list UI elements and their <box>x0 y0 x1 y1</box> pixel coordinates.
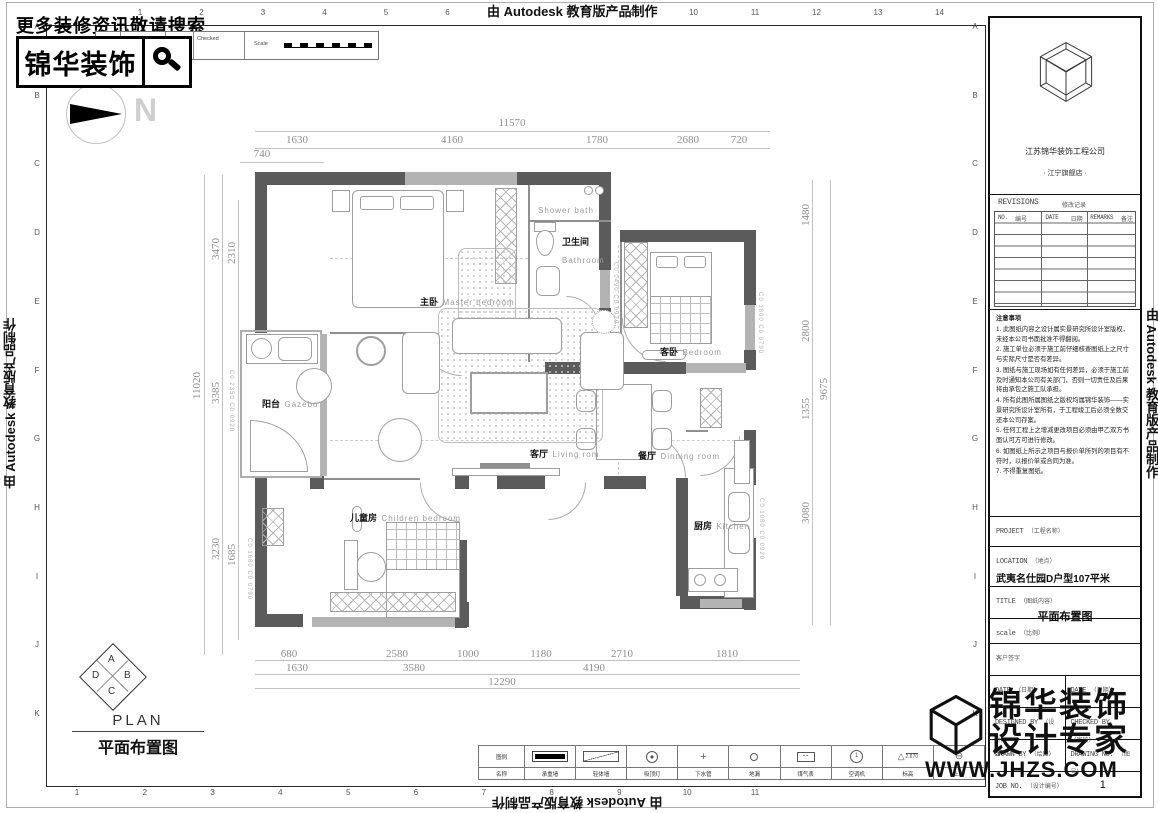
dimension-line <box>830 180 831 625</box>
toilet <box>536 230 554 256</box>
pillow <box>684 256 706 268</box>
wall-segment <box>620 362 686 374</box>
dim: 3580 <box>403 662 425 674</box>
dim-top-total: 11570 <box>498 117 525 129</box>
project-section: PROJECT （工程名称） <box>990 517 1140 547</box>
autodesk-watermark-bottom: 由 Autodesk 教育版产品制作 <box>492 794 662 813</box>
room-label-master: 主卧 Master bedroom <box>420 292 515 310</box>
location-value: 武夷名仕园D户型107平米 <box>996 570 1134 585</box>
room-label-en: Gazebo <box>284 400 318 409</box>
title-section: TITLE （图纸内容） 平面布置图 <box>990 587 1140 619</box>
wall-segment <box>255 614 303 627</box>
solid-wall-symbol <box>525 746 575 768</box>
burner <box>714 574 726 586</box>
jhzs-url: WWW.JHZS.COM <box>925 757 1157 783</box>
grid-label: 11 <box>748 788 762 797</box>
room-label-children: 儿童房 Children bedroom <box>350 508 461 526</box>
note-item: 7. 不得重复图纸。 <box>996 467 1134 477</box>
dimension-line <box>222 175 223 655</box>
dim: 2710 <box>611 648 633 660</box>
pillow <box>400 196 434 210</box>
dir-label-d: D <box>92 670 99 681</box>
scale-field-label: scale <box>996 630 1016 638</box>
elevation-reference-symbol: A B C D <box>78 642 148 712</box>
scale-label: Scale <box>254 41 268 47</box>
note-item: 4. 所有此图所属图纸之版权均属锦华装饰——实景研究所设计室所有，于工程竣工后必… <box>996 396 1134 425</box>
dim: 3230 <box>210 538 222 560</box>
job-no-label: JOB NO. <box>995 783 1022 791</box>
client-sign-label: 客户签字 <box>996 656 1020 662</box>
dimension-line <box>812 180 813 625</box>
dim: 1780 <box>586 134 608 146</box>
dim-bottom-total: 12290 <box>488 676 516 688</box>
client-sign-section: 客户签字 <box>990 644 1140 676</box>
window-wall <box>686 363 746 373</box>
jhzs-text-1: 锦华装饰 <box>989 688 1157 723</box>
dim: 2310 <box>226 242 238 264</box>
window-tag: C0 0490 C0 0920 <box>612 262 618 324</box>
window-tag: C0 1680 C0 0790 <box>246 538 252 600</box>
shoe-cabinet <box>700 388 722 428</box>
brand-logo-text: 锦华装饰 <box>19 39 142 85</box>
title-block: 江苏锦华装饰工程公司 · 江宁旗舰店 · REVISIONS 修改记录 NO. … <box>988 16 1142 798</box>
shower-fitting <box>595 186 604 195</box>
magnifier-icon <box>142 39 189 85</box>
room-label-cn: 客卧 <box>660 347 678 357</box>
room-label-cn: 主卧 <box>420 297 438 307</box>
shower-fitting <box>584 186 593 195</box>
dimension-line <box>255 688 800 689</box>
scale-field-label-cn: （比例） <box>1020 631 1044 637</box>
dim: 3080 <box>800 502 812 524</box>
dining-chair <box>652 390 672 412</box>
dimension-line <box>255 660 800 661</box>
ac-unit-symbol: 1 <box>832 746 882 768</box>
note-item: 1. 此图纸内容之设计属实景研究所设计室版权，未经本公司书面批准不得翻阅。 <box>996 325 1134 345</box>
sofa <box>452 318 562 354</box>
window-wall <box>312 617 455 627</box>
company-section: 江苏锦华装饰工程公司 · 江宁旗舰店 · <box>990 18 1140 195</box>
plan-caption-cn: 平面布置图 <box>72 734 204 758</box>
wardrobe <box>330 592 456 612</box>
plan-caption: PLAN 平面布置图 <box>72 712 204 758</box>
cabinet <box>262 508 284 546</box>
room-label-en: Dinning room <box>660 452 720 461</box>
wardrobe <box>495 188 517 284</box>
laundry-basin <box>251 338 272 359</box>
desk <box>344 540 358 590</box>
job-no-label-cn: （设计编号） <box>1027 784 1063 790</box>
rev-col-date: DATE <box>1045 214 1058 221</box>
floor-drain-symbol <box>729 746 779 768</box>
window-tag: C0 1080 C0 0920 <box>758 498 764 560</box>
title-label-cn: （图纸内容） <box>1020 599 1056 605</box>
room-label-cn: 阳台 <box>262 399 280 409</box>
gas-meter-symbol: ▪ ▪ <box>781 746 831 768</box>
dir-label-b: B <box>124 670 131 681</box>
nightstand <box>446 190 464 212</box>
legend-item-name: 下水管 <box>678 768 728 779</box>
table-divider <box>193 32 194 59</box>
legend-item-name: 空调机 <box>832 768 882 779</box>
rev-col-no: NO. <box>998 214 1008 221</box>
dimension-line <box>238 200 239 640</box>
dim: 1810 <box>716 648 738 660</box>
notes-title: 注意事项 <box>996 314 1134 324</box>
window-wall <box>600 270 610 308</box>
armchair <box>580 332 624 390</box>
legend-item-name: 煤气表 <box>781 768 831 779</box>
dim: 1685 <box>226 544 238 566</box>
wall-segment <box>255 185 267 333</box>
dim: 1000 <box>457 648 479 660</box>
window-wall <box>745 305 755 350</box>
round-chair <box>378 418 422 462</box>
partition-line <box>686 430 708 432</box>
dim: 1480 <box>800 204 812 226</box>
legend-item-name: 轻体墙 <box>576 768 626 779</box>
wall-segment <box>255 476 267 626</box>
note-item: 3. 图纸与施工现场如有任何差异，必须于施工前及时通知本公司有关部门，否则一切责… <box>996 366 1134 395</box>
dimension-line <box>255 148 770 149</box>
dim: 2800 <box>800 320 812 342</box>
grid-label: 8 <box>545 788 559 797</box>
room-label-cn: 卫生间 <box>562 237 589 247</box>
room-label-cn: 餐厅 <box>638 451 656 461</box>
window-tag: C0 1800 C0 0790 <box>757 292 763 354</box>
dim: 720 <box>731 134 748 146</box>
room-label-en: Shower bath <box>538 206 594 215</box>
dim: 4190 <box>583 662 605 674</box>
checked-label: Checked <box>197 36 219 42</box>
room-label-cn: 厨房 <box>694 521 712 531</box>
room-label-en: Master bedroom <box>442 298 514 307</box>
burner <box>694 574 706 586</box>
light-wall-symbol <box>576 746 626 768</box>
dim: 1180 <box>530 648 552 660</box>
legend-item: + 下水管 <box>678 746 729 779</box>
dim: 680 <box>281 648 298 660</box>
grid-label: 9 <box>612 788 626 797</box>
room-label-living: 客厅 Living rom <box>530 444 599 462</box>
desk-chair <box>356 552 386 582</box>
notes-list: 1. 此图纸内容之设计属实景研究所设计室版权，未经本公司书面批准不得翻阅。2. … <box>996 325 1134 477</box>
dir-label-c: C <box>108 686 115 697</box>
sofa-side <box>402 332 440 394</box>
revisions-title: REVISIONS <box>998 198 1039 207</box>
company-cube-logo <box>1034 40 1098 104</box>
dim: 3385 <box>210 382 222 404</box>
legend-header-bottom: 名称 <box>479 768 524 779</box>
grid-label: 2 <box>138 788 152 797</box>
revisions-section: REVISIONS 修改记录 NO. 编号 DATE 日期 REMARKS 备注 <box>990 195 1140 310</box>
room-label-dining: 餐厅 Dinning room <box>638 446 720 464</box>
room-label-shower: Shower bath <box>538 200 594 218</box>
dimension-line <box>255 674 800 675</box>
jhzs-text-2: 设计专家 <box>989 723 1157 758</box>
revisions-title-cn: 修改记录 <box>1062 200 1086 209</box>
legend-header-cell: 图例 名称 <box>479 746 525 779</box>
legend-item: ▪ ▪ 煤气表 <box>781 746 832 779</box>
legend-item: 吸顶灯 <box>627 746 678 779</box>
window-wall <box>700 599 742 608</box>
room-label-kitchen: 厨房 Kitchen <box>694 516 750 534</box>
title-label: TITLE <box>996 598 1016 606</box>
room-label-en: Bedroom <box>682 348 721 357</box>
wall-segment <box>497 476 545 489</box>
grid-label: 4 <box>273 788 287 797</box>
scale-bar <box>284 43 372 48</box>
room-label-en: Living rom <box>552 450 599 459</box>
jhzs-cube-logo <box>925 694 987 756</box>
scale-section: scale （比例） <box>990 619 1140 645</box>
revisions-table: NO. 编号 DATE 日期 REMARKS 备注 <box>994 211 1136 307</box>
wall-segment <box>620 230 746 242</box>
wall-segment <box>676 478 688 596</box>
brand-logo-box: 锦华装饰 <box>16 36 192 88</box>
wall-segment <box>255 172 405 185</box>
room-label-cn: 客厅 <box>530 449 548 459</box>
legend-item: 地漏 <box>729 746 780 779</box>
dim: 1630 <box>286 662 308 674</box>
store-name: · 江宁旗舰店 · <box>990 168 1140 178</box>
dimension-line <box>255 131 770 132</box>
room-label-en: Children bedroom <box>381 514 461 523</box>
fridge <box>734 440 750 484</box>
bed-blanket <box>386 522 460 570</box>
nightstand <box>332 190 350 212</box>
grid-label: 6 <box>409 788 423 797</box>
notes-section: 注意事项 1. 此图纸内容之设计属实景研究所设计室版权，未经本公司书面批准不得翻… <box>990 310 1140 517</box>
bathroom-sink <box>536 266 560 296</box>
bed-blanket <box>650 296 712 344</box>
room-label-bathroom: 卫生间Bathroom <box>562 232 605 268</box>
dim: 4160 <box>441 134 463 146</box>
legend-item: 1 空调机 <box>832 746 883 779</box>
pillow <box>360 196 394 210</box>
legend-item-name: 吸顶灯 <box>627 768 677 779</box>
autodesk-watermark-right: 由 Autodesk 教育版产品制作 <box>1142 308 1158 478</box>
pillow <box>656 256 678 268</box>
dimension-line <box>240 162 324 163</box>
plan-caption-en: PLAN <box>72 712 204 732</box>
room-label-balcony: 阳台 Gazebo <box>262 394 319 412</box>
note-item: 6. 如图纸上所示之项目与报价单所列的项目有不符时，以报价单或合同为准。 <box>996 447 1134 467</box>
grid-label: 5 <box>341 788 355 797</box>
dim: 1355 <box>800 398 812 420</box>
company-name: 江苏锦华装饰工程公司 <box>990 146 1140 157</box>
table-divider <box>244 32 245 59</box>
dir-label-a: A <box>108 654 115 665</box>
legend-item: 轻体墙 <box>576 746 627 779</box>
dim: 2680 <box>677 134 699 146</box>
dim: 1630 <box>286 134 308 146</box>
dim-left-total: 11020 <box>191 372 203 399</box>
grid-label: 10 <box>680 788 694 797</box>
location-section: LOCATION （地点） 武夷名仕园D户型107平米 <box>990 547 1140 587</box>
note-item: 5. 任何工程上之增减更改项目必须由甲乙双方书面认可方可进行修改。 <box>996 426 1134 446</box>
legend-header-top: 图例 <box>479 746 524 768</box>
door-arc <box>548 482 586 520</box>
legend-table: 图例 名称 承重墙 轻体墙 吸顶灯 + 下水管 地漏 ▪ ▪ 煤气表 1 空调机… <box>478 745 985 780</box>
rev-col-remarks: REMARKS <box>1090 214 1113 221</box>
grid-label: 7 <box>477 788 491 797</box>
legend-item-name: 承重墙 <box>525 768 575 779</box>
elevation-value: 2.870 <box>906 753 919 760</box>
ceiling-lamp-symbol <box>627 746 677 768</box>
grid-label: 1 <box>70 788 84 797</box>
wall-segment <box>744 230 756 305</box>
window-wall <box>405 172 517 185</box>
dim: 3470 <box>210 238 222 260</box>
rev-col-date-cn: 日期 <box>1071 214 1083 223</box>
legend-item: 承重墙 <box>525 746 576 779</box>
rev-col-no-cn: 编号 <box>1015 214 1027 223</box>
wardrobe <box>624 242 648 328</box>
window-tag: C0 2350 C0 0920 <box>228 370 234 432</box>
grid-label: 3 <box>206 788 220 797</box>
room-label-bedroom: 客卧 Bedroom <box>660 342 722 360</box>
project-label: PROJECT <box>996 528 1023 536</box>
dim-right-total: 9675 <box>818 378 830 400</box>
tv <box>480 463 530 468</box>
drawing-sheet: { "watermarks": { "autodesk": "由 Autodes… <box>0 0 1158 810</box>
partition-line <box>324 478 420 480</box>
location-label-cn: （地点） <box>1032 559 1056 565</box>
note-item: 2. 施工单位必须于施工前仔细核查图纸上之尺寸与实际尺寸是否有差异。 <box>996 345 1134 365</box>
project-label-cn: （工程名称） <box>1028 529 1064 535</box>
washing-machine <box>278 337 312 361</box>
balcony-slider-door <box>320 334 327 476</box>
coffee-table <box>470 372 548 414</box>
rev-col-remarks-cn: 备注 <box>1121 214 1133 223</box>
jhzs-watermark: 锦华装饰 设计专家 WWW.JHZS.COM <box>925 688 1157 783</box>
room-label-cn: 儿童房 <box>350 513 377 523</box>
room-label-en: Kitchen <box>716 522 750 531</box>
room-label-en: Bathroom <box>562 256 605 265</box>
location-label: LOCATION <box>996 558 1027 566</box>
dim: 740 <box>254 148 271 160</box>
wall-segment <box>517 172 611 185</box>
drain-pipe-symbol: + <box>678 746 728 768</box>
dimension-line <box>204 175 205 655</box>
tv-cabinet <box>452 468 560 476</box>
fan-table <box>356 336 386 366</box>
dim: 2580 <box>386 648 408 660</box>
legend-item-name: 地漏 <box>729 768 779 779</box>
